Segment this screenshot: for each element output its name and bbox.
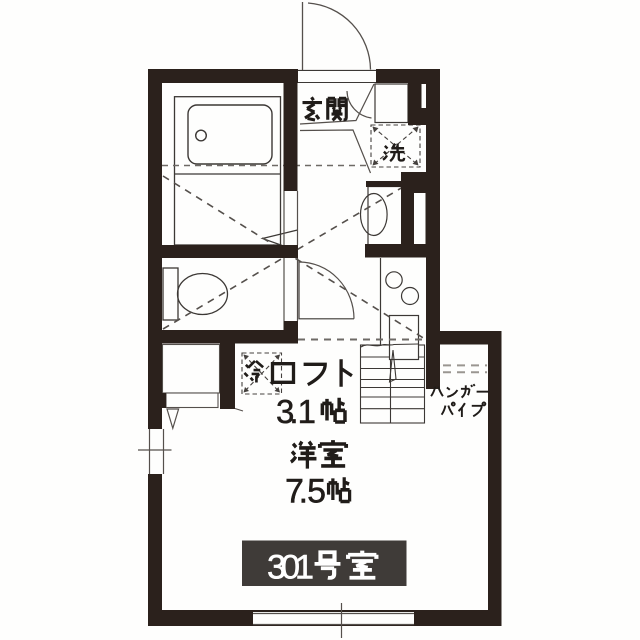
svg-text:301: 301 <box>267 549 314 587</box>
svg-text:3. 1: 3. 1 <box>276 393 316 430</box>
svg-text:7. 5: 7. 5 <box>285 473 326 511</box>
